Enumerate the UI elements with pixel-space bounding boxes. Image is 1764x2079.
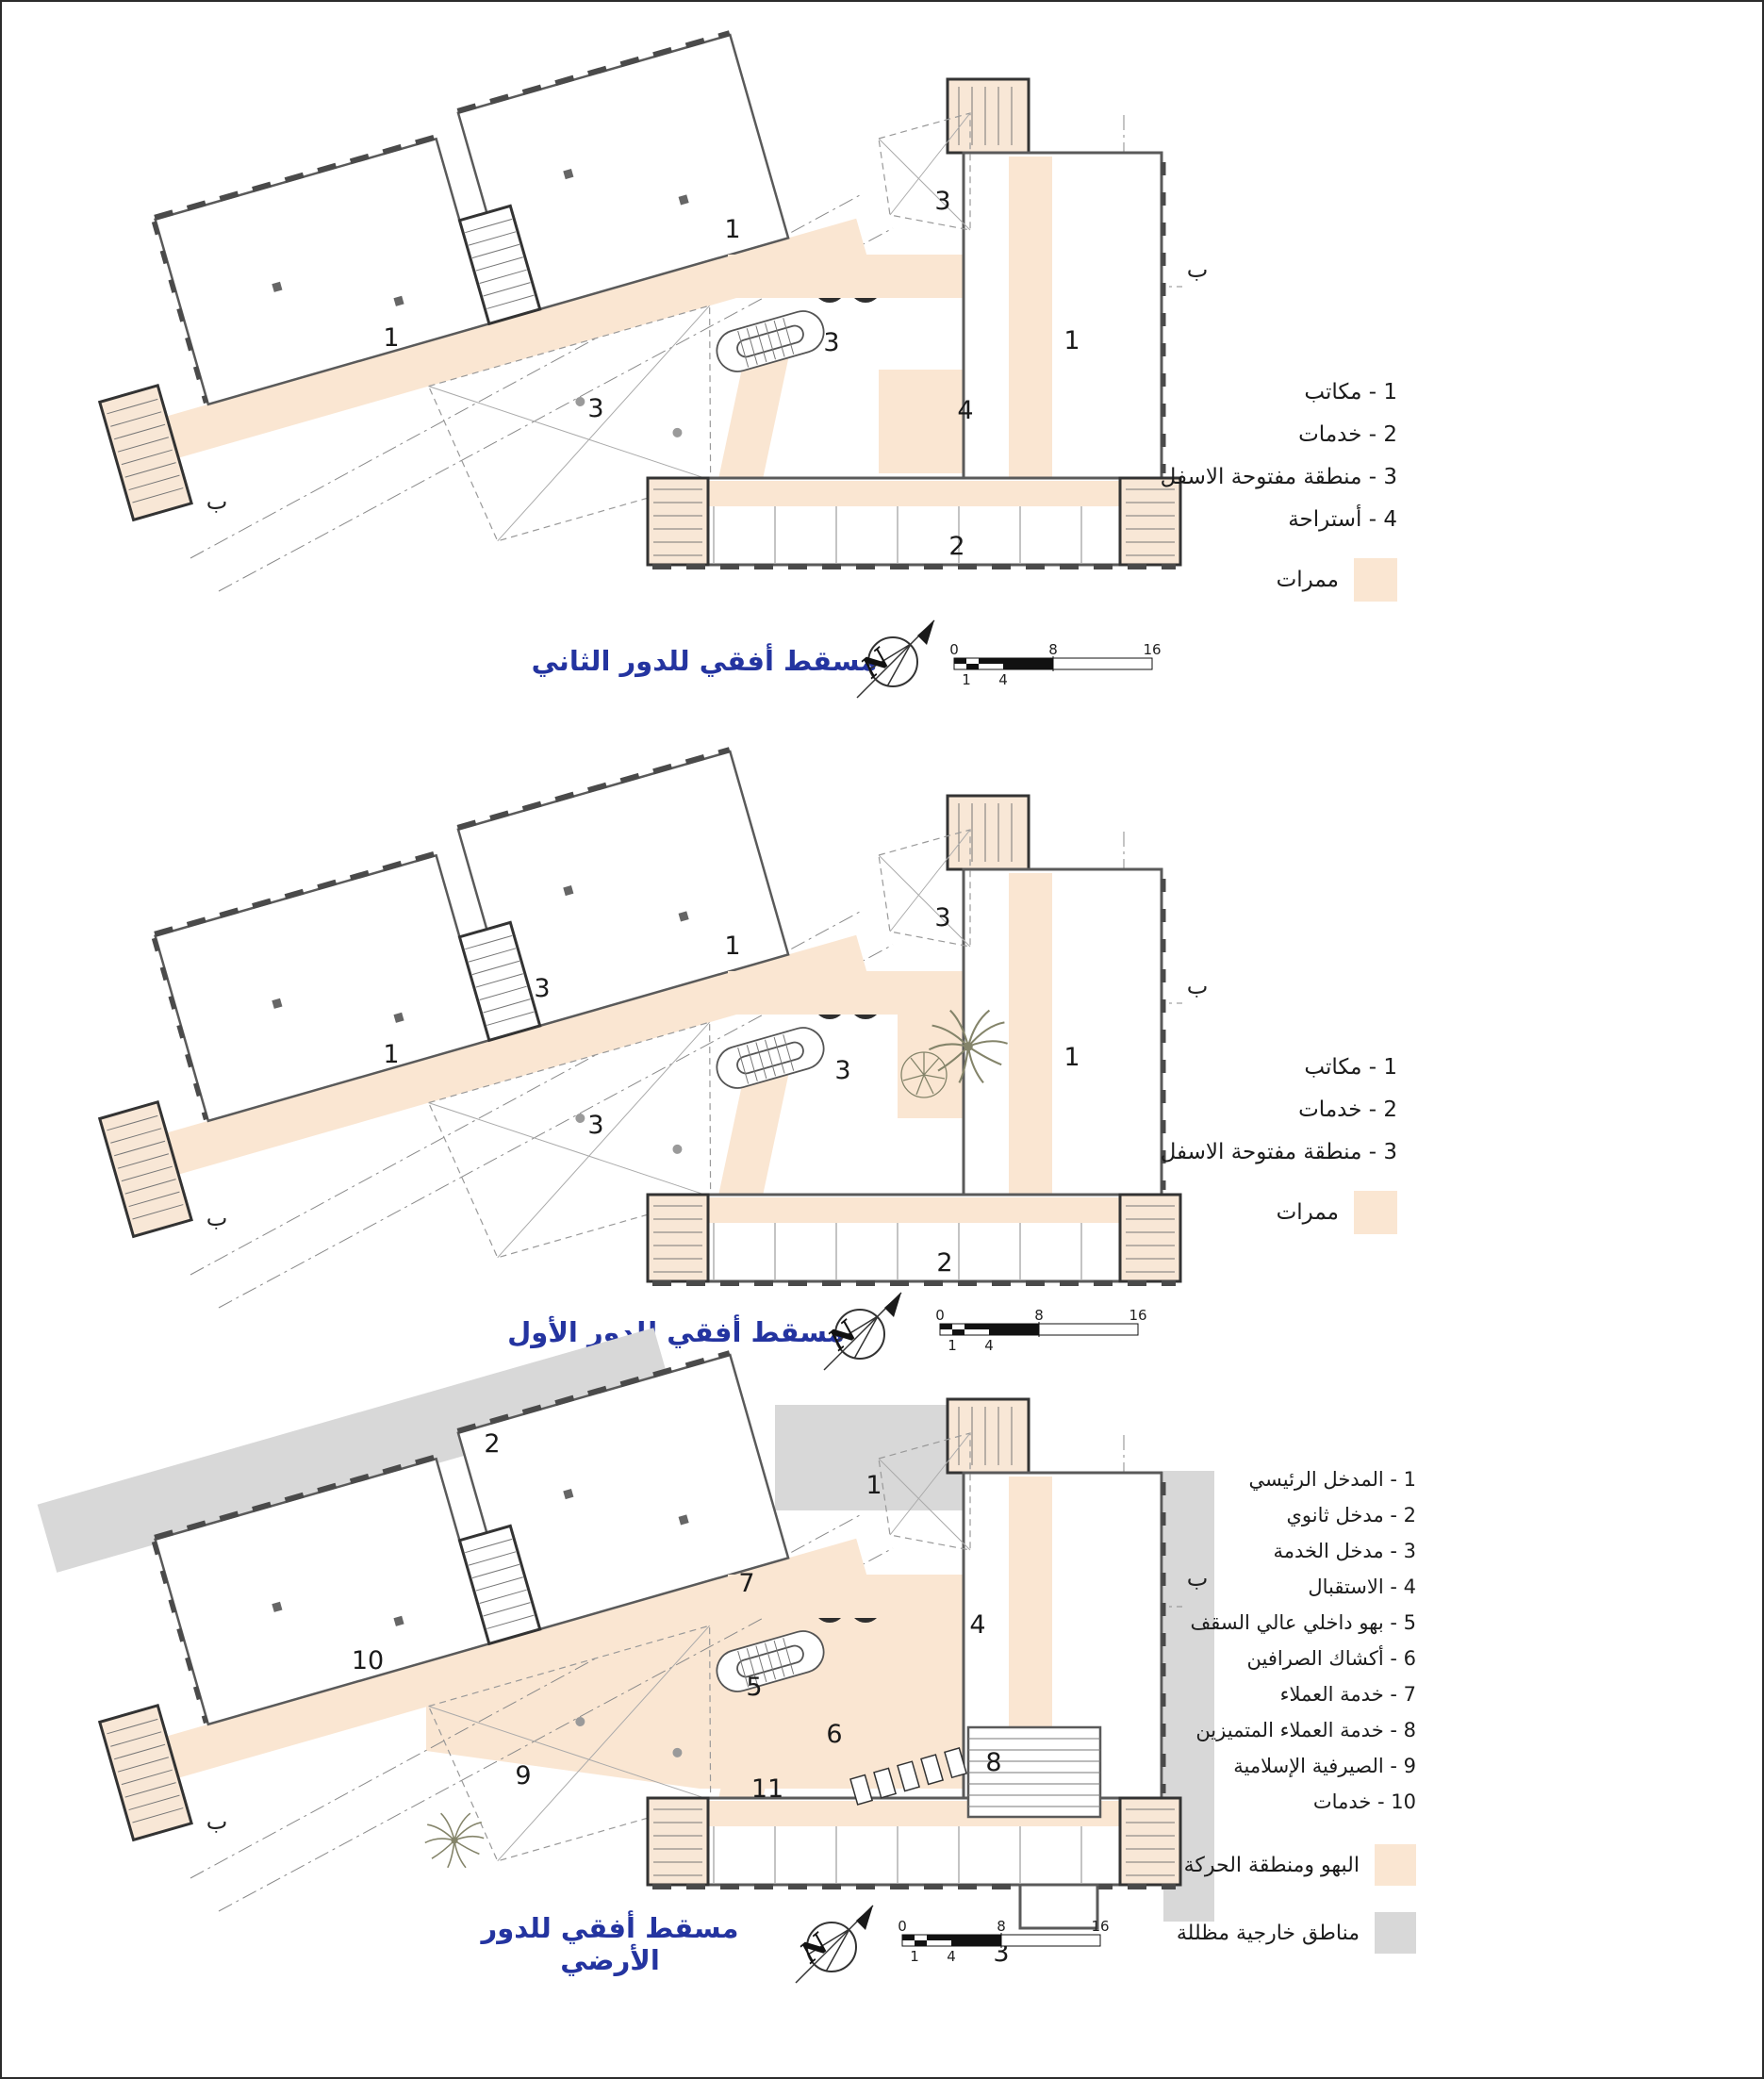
room-label: 3 [934, 187, 950, 216]
room-label: 1 [383, 1040, 399, 1069]
shaded-outdoor-swatch [1375, 1912, 1416, 1954]
section-marker: ب [206, 1205, 228, 1231]
legend-first-floor: 1 - مكاتب 2 - خدمات 3 - منطقة مفتوحة الا… [1086, 1047, 1397, 1234]
legend-swatch-row: ممرات [1086, 1191, 1397, 1234]
section-marker: ب [206, 1808, 228, 1835]
room-label: 5 [746, 1673, 762, 1702]
legend-item: 6 - أكشاك الصرافين [1048, 1641, 1416, 1676]
scale-tick: 8 [1048, 641, 1058, 658]
legend-item: 4 - الاستقبال [1048, 1569, 1416, 1605]
legend-swatch-row: البهو ومنطقة الحركة [1048, 1844, 1416, 1886]
legend-item: 1 - مكاتب [1086, 1047, 1397, 1089]
swatch-label: مناطق خارجية مظللة [1177, 1922, 1360, 1945]
scale-tick: 0 [949, 641, 959, 658]
corridors-swatch [1354, 558, 1397, 602]
compass-icon: N [841, 610, 945, 714]
room-label: 1 [724, 215, 740, 244]
section-marker: ب [1187, 256, 1209, 283]
scale-tick: 16 [1129, 1307, 1146, 1324]
scale-tick: 4 [998, 671, 1008, 688]
document-page: 1 3 1 3 3 4 1 2 ب ب مسقط أفقي للدور الثا… [0, 0, 1764, 2079]
room-label: 2 [936, 1248, 952, 1278]
plan-title: مسقط أفقي للدور الأرضي [437, 1912, 783, 1976]
legend-item: 3 - مدخل الخدمة [1048, 1533, 1416, 1569]
swatch-label: ممرات [1277, 568, 1339, 592]
room-label: 4 [969, 1610, 985, 1640]
legend-item: 1 - مكاتب [1086, 371, 1397, 414]
legend-item: 2 - خدمات [1086, 414, 1397, 456]
legend-item: 7 - خدمة العملاء [1048, 1676, 1416, 1712]
scale-tick: 1 [910, 1948, 919, 1965]
room-label: 1 [1063, 326, 1080, 355]
section-marker: ب [1187, 973, 1209, 999]
room-label: 10 [352, 1646, 384, 1675]
legend-item: 5 - بهو داخلي عالي السقف [1048, 1605, 1416, 1641]
room-label: 3 [823, 328, 839, 357]
swatch-label: ممرات [1277, 1200, 1339, 1225]
first-floor-drawing: 1 3 1 3 3 3 1 2 ب ب [124, 747, 1218, 1369]
section-marker: ب [206, 488, 228, 515]
scale-tick: 4 [947, 1948, 956, 1965]
room-label: 1 [1063, 1043, 1080, 1072]
room-label: 4 [957, 396, 973, 425]
room-label: 6 [826, 1720, 842, 1749]
compass-icon: N [780, 1895, 883, 1999]
room-label: 1 [724, 932, 740, 961]
scale-tick: 8 [997, 1918, 1006, 1935]
room-label: 3 [534, 974, 550, 1003]
room-label: 2 [484, 1429, 500, 1459]
scale-tick: 1 [962, 671, 971, 688]
legend-item: 2 - خدمات [1086, 1089, 1397, 1131]
legend-item: 9 - الصيرفية الإسلامية [1048, 1748, 1416, 1784]
room-label: 3 [587, 394, 603, 423]
scale-tick: 0 [935, 1307, 945, 1324]
legend-ground-floor: 1 - المدخل الرئيسي 2 - مدخل ثانوي 3 - مد… [1048, 1461, 1416, 1954]
room-label: 3 [934, 903, 950, 932]
room-label: 1 [383, 323, 399, 353]
room-label: 7 [738, 1569, 754, 1598]
palm-icon [425, 1813, 484, 1868]
legend-item: 1 - المدخل الرئيسي [1048, 1461, 1416, 1497]
room-label: 2 [948, 532, 964, 561]
plan-title: مسقط أفقي للدور الثاني [516, 645, 893, 677]
plan-title: مسقط أفقي للدور الأول [497, 1316, 855, 1348]
lobby-circulation-swatch [1375, 1844, 1416, 1886]
room-label: 9 [515, 1761, 531, 1790]
swatch-label: البهو ومنطقة الحركة [1184, 1854, 1360, 1877]
legend-item: 2 - مدخل ثانوي [1048, 1497, 1416, 1533]
legend-swatch-row: مناطق خارجية مظللة [1048, 1912, 1416, 1954]
second-floor-drawing: 1 3 1 3 3 4 1 2 ب ب [124, 30, 1218, 652]
room-label: 11 [751, 1774, 783, 1804]
scale-tick: 16 [1143, 641, 1161, 658]
legend-swatch-row: ممرات [1086, 558, 1397, 602]
legend-item: 4 - أستراحة [1086, 499, 1397, 541]
room-label: 8 [985, 1748, 1001, 1777]
scale-tick: 0 [898, 1918, 907, 1935]
legend-item: 3 - منطقة مفتوحة الاسفل [1086, 1131, 1397, 1174]
corridors-swatch [1354, 1191, 1397, 1234]
scale-tick: 8 [1034, 1307, 1044, 1324]
scale-bar: 0 8 16 1 4 [945, 643, 1162, 690]
scale-bar: 0 8 16 1 4 [931, 1309, 1147, 1356]
legend-item: 8 - خدمة العملاء المتميزين [1048, 1712, 1416, 1748]
room-label: 1 [866, 1471, 882, 1500]
room-label: 3 [587, 1111, 603, 1140]
legend-item: 3 - منطقة مفتوحة الاسفل [1086, 456, 1397, 499]
room-label: 3 [834, 1056, 850, 1085]
legend-item: 10 - خدمات [1048, 1784, 1416, 1820]
legend-second-floor: 1 - مكاتب 2 - خدمات 3 - منطقة مفتوحة الا… [1086, 371, 1397, 602]
